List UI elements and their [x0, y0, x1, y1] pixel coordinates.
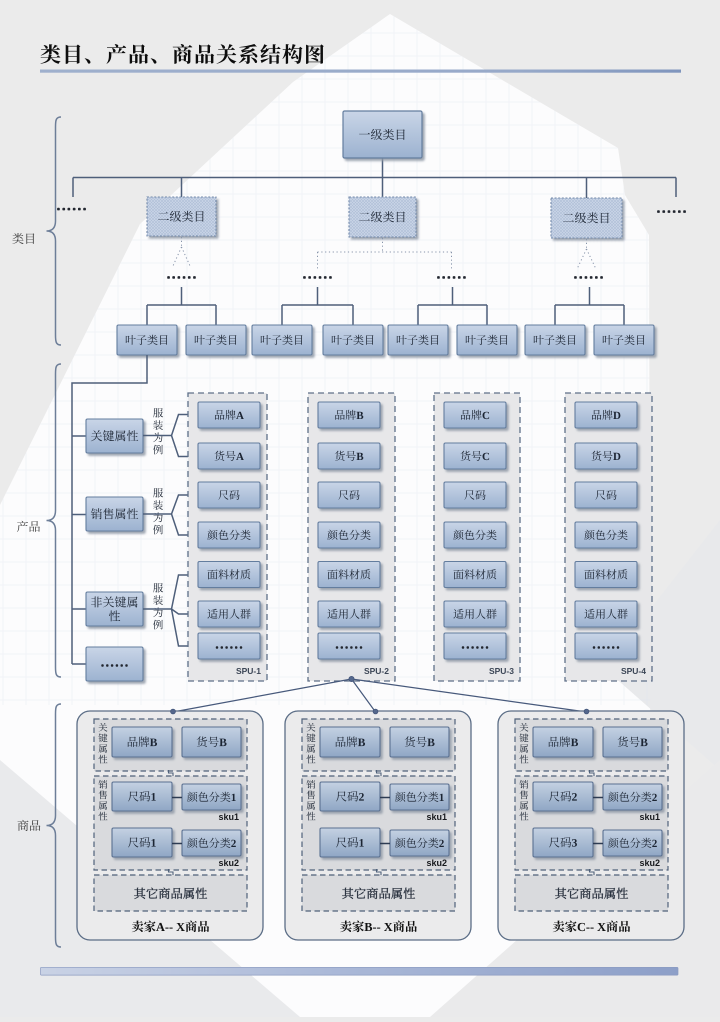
svg-text:sku1: sku1 [218, 812, 239, 822]
svg-text:SPU-1: SPU-1 [236, 666, 261, 676]
svg-text:sku1: sku1 [426, 812, 447, 822]
svg-text:SPU-4: SPU-4 [621, 666, 646, 676]
svg-text:sku2: sku2 [426, 858, 447, 868]
svg-text:SPU-3: SPU-3 [489, 666, 514, 676]
svg-text:sku2: sku2 [639, 858, 660, 868]
svg-text:sku1: sku1 [639, 812, 660, 822]
svg-text:sku2: sku2 [218, 858, 239, 868]
svg-text:SPU-2: SPU-2 [364, 666, 389, 676]
